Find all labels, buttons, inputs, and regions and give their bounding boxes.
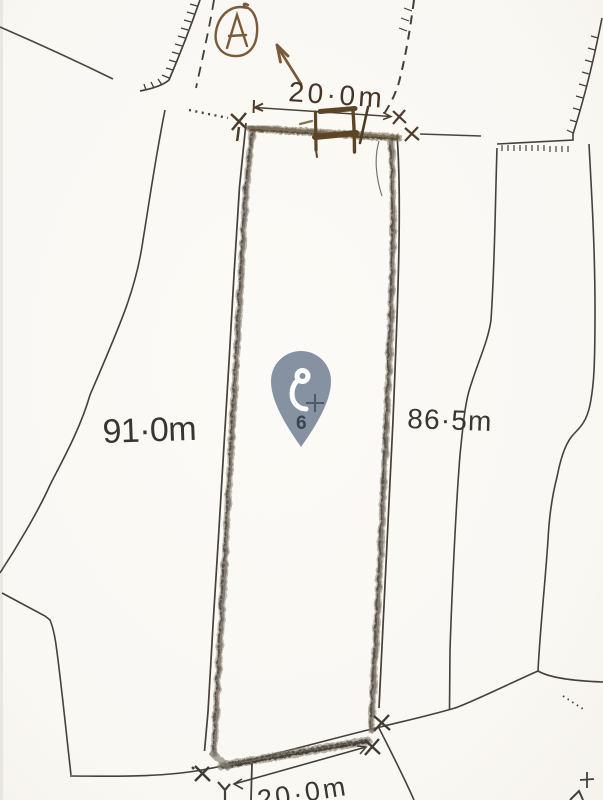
svg-text:6: 6 <box>296 413 307 434</box>
svg-text:91·0m: 91·0m <box>102 410 197 451</box>
svg-text:86·5m: 86·5m <box>407 403 493 437</box>
